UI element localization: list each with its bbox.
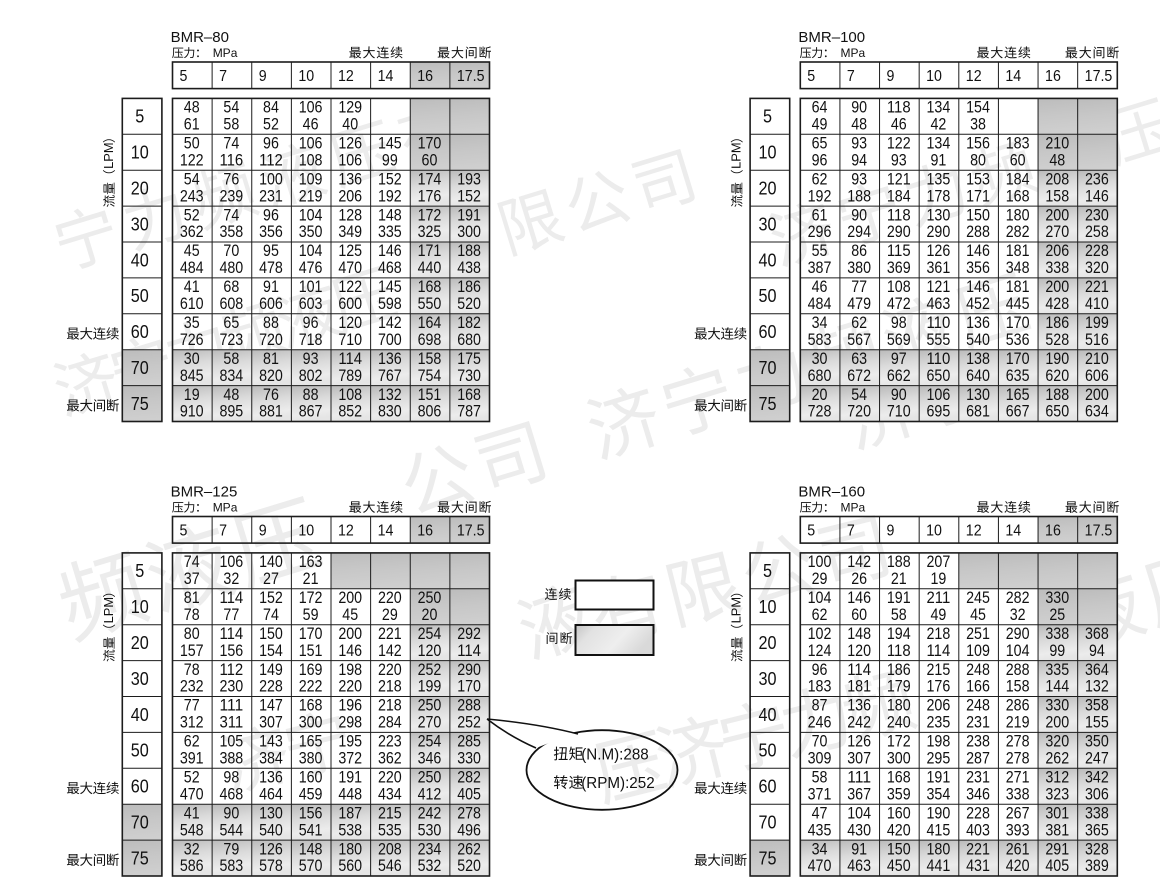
svg-text:93: 93 — [303, 350, 319, 368]
svg-text:34: 34 — [812, 314, 828, 332]
svg-text:536: 536 — [1006, 331, 1030, 349]
svg-text:50: 50 — [131, 286, 149, 306]
svg-text:40: 40 — [131, 705, 149, 725]
svg-text:21: 21 — [303, 570, 319, 588]
svg-text:88: 88 — [303, 386, 319, 404]
svg-text:114: 114 — [219, 625, 243, 643]
svg-text:LPM: LPM — [729, 597, 744, 624]
svg-text:136: 136 — [338, 170, 362, 188]
svg-text:620: 620 — [1045, 367, 1069, 385]
svg-text:60: 60 — [422, 151, 438, 169]
svg-text:183: 183 — [1006, 135, 1030, 153]
svg-text:472: 472 — [887, 295, 911, 313]
svg-text:608: 608 — [219, 295, 243, 313]
svg-text:335: 335 — [1045, 661, 1069, 679]
svg-text:367: 367 — [847, 785, 871, 803]
svg-text:187: 187 — [338, 804, 362, 822]
svg-text:75: 75 — [759, 848, 777, 868]
svg-text:106: 106 — [219, 553, 243, 571]
svg-text:480: 480 — [219, 259, 243, 277]
svg-text:464: 464 — [259, 785, 283, 803]
svg-text:181: 181 — [1006, 242, 1030, 260]
svg-text:246: 246 — [808, 714, 832, 732]
svg-text:220: 220 — [378, 589, 402, 607]
svg-text:191: 191 — [887, 589, 911, 607]
svg-text:12: 12 — [338, 68, 354, 85]
svg-text:548: 548 — [180, 821, 204, 839]
svg-text:603: 603 — [299, 295, 323, 313]
svg-text:BMR–100: BMR–100 — [798, 29, 865, 46]
svg-text:254: 254 — [418, 733, 442, 751]
svg-text:12: 12 — [966, 68, 982, 85]
svg-text:231: 231 — [966, 769, 990, 787]
svg-text:74: 74 — [263, 606, 279, 624]
svg-text:91: 91 — [263, 278, 279, 296]
svg-text:200: 200 — [338, 625, 362, 643]
svg-text:46: 46 — [812, 278, 828, 296]
svg-text:52: 52 — [184, 769, 200, 787]
svg-text:93: 93 — [891, 151, 907, 169]
svg-text:476: 476 — [299, 259, 323, 277]
svg-text:365: 365 — [1085, 821, 1109, 839]
svg-text:198: 198 — [338, 661, 362, 679]
svg-text:9: 9 — [259, 68, 267, 85]
svg-text:610: 610 — [180, 295, 204, 313]
svg-text:720: 720 — [259, 331, 283, 349]
svg-text:124: 124 — [808, 642, 832, 660]
svg-text:578: 578 — [259, 857, 283, 875]
svg-text:650: 650 — [1045, 403, 1069, 421]
svg-text:220: 220 — [378, 661, 402, 679]
svg-text:78: 78 — [184, 661, 200, 679]
svg-text:530: 530 — [418, 821, 442, 839]
svg-text:358: 358 — [219, 223, 243, 241]
svg-text:680: 680 — [457, 331, 481, 349]
svg-text:112: 112 — [219, 661, 243, 679]
svg-text:17.5: 17.5 — [457, 68, 485, 85]
svg-text:270: 270 — [418, 714, 442, 732]
svg-text:338: 338 — [1085, 804, 1109, 822]
svg-text:309: 309 — [808, 750, 832, 768]
svg-text:459: 459 — [299, 785, 323, 803]
svg-text:74: 74 — [223, 135, 239, 153]
svg-text:700: 700 — [378, 331, 402, 349]
svg-text:278: 278 — [1006, 750, 1030, 768]
svg-text:271: 271 — [1006, 769, 1030, 787]
svg-text:136: 136 — [847, 697, 871, 715]
svg-text:42: 42 — [930, 116, 946, 134]
svg-text:325: 325 — [418, 223, 442, 241]
svg-text:19: 19 — [930, 570, 946, 588]
svg-text:5: 5 — [807, 523, 815, 540]
svg-text:291: 291 — [1045, 840, 1069, 858]
svg-text:180: 180 — [1006, 206, 1030, 224]
svg-text:30: 30 — [759, 214, 777, 234]
svg-text:430: 430 — [847, 821, 871, 839]
svg-text:17.5: 17.5 — [457, 523, 485, 540]
svg-text:106: 106 — [299, 99, 323, 117]
svg-text:330: 330 — [1045, 697, 1069, 715]
svg-text:240: 240 — [887, 714, 911, 732]
svg-text:220: 220 — [338, 678, 362, 696]
svg-text:160: 160 — [887, 804, 911, 822]
svg-text:5: 5 — [763, 561, 772, 581]
svg-text:136: 136 — [259, 769, 283, 787]
svg-text:76: 76 — [223, 170, 239, 188]
svg-text:282: 282 — [1006, 223, 1030, 241]
svg-text:434: 434 — [378, 785, 402, 803]
svg-text:288: 288 — [1006, 661, 1030, 679]
svg-text:230: 230 — [1085, 206, 1109, 224]
svg-text:170: 170 — [418, 135, 442, 153]
svg-text:420: 420 — [1006, 857, 1030, 875]
svg-text:544: 544 — [219, 821, 243, 839]
svg-text:65: 65 — [812, 135, 828, 153]
svg-text:48: 48 — [1049, 151, 1065, 169]
svg-text:479: 479 — [847, 295, 871, 313]
svg-text:136: 136 — [378, 350, 402, 368]
svg-text:172: 172 — [418, 206, 442, 224]
svg-text:176: 176 — [927, 678, 951, 696]
svg-text:17.5: 17.5 — [1085, 523, 1113, 540]
svg-text:BMR–125: BMR–125 — [171, 484, 238, 501]
svg-text:47: 47 — [812, 804, 828, 822]
svg-text:726: 726 — [180, 331, 204, 349]
svg-text:852: 852 — [338, 403, 362, 421]
svg-text:180: 180 — [927, 840, 951, 858]
svg-text:311: 311 — [219, 714, 243, 732]
svg-text:170: 170 — [1006, 314, 1030, 332]
svg-text:60: 60 — [1010, 151, 1026, 169]
svg-text:448: 448 — [338, 785, 362, 803]
svg-text:468: 468 — [219, 785, 243, 803]
svg-text:191: 191 — [457, 206, 481, 224]
svg-text:10: 10 — [759, 143, 777, 163]
svg-text:282: 282 — [457, 769, 481, 787]
svg-text:114: 114 — [219, 589, 243, 607]
svg-text:188: 188 — [887, 553, 911, 571]
svg-text:188: 188 — [1045, 386, 1069, 404]
svg-text:146: 146 — [966, 278, 990, 296]
svg-text:104: 104 — [847, 804, 871, 822]
svg-text:7: 7 — [847, 68, 855, 85]
svg-text:100: 100 — [259, 170, 283, 188]
svg-text:60: 60 — [851, 606, 867, 624]
svg-text:122: 122 — [338, 278, 362, 296]
svg-text:182: 182 — [457, 314, 481, 332]
svg-text:30: 30 — [184, 350, 200, 368]
svg-text:98: 98 — [891, 314, 907, 332]
svg-text:140: 140 — [259, 553, 283, 571]
svg-text:121: 121 — [927, 278, 951, 296]
svg-text:346: 346 — [966, 785, 990, 803]
svg-text:157: 157 — [180, 642, 204, 660]
svg-text:20: 20 — [131, 178, 149, 198]
svg-text:546: 546 — [378, 857, 402, 875]
svg-text:49: 49 — [930, 606, 946, 624]
svg-text:146: 146 — [338, 642, 362, 660]
svg-text:346: 346 — [418, 750, 442, 768]
svg-text:186: 186 — [1045, 314, 1069, 332]
svg-text:258: 258 — [1085, 223, 1109, 241]
svg-text:98: 98 — [223, 769, 239, 787]
svg-text:535: 535 — [378, 821, 402, 839]
svg-text:110: 110 — [927, 350, 951, 368]
svg-text:294: 294 — [847, 223, 871, 241]
svg-text:210: 210 — [1045, 135, 1069, 153]
svg-text:191: 191 — [338, 769, 362, 787]
svg-text:250: 250 — [418, 769, 442, 787]
svg-text:198: 198 — [927, 733, 951, 751]
svg-text:106: 106 — [927, 386, 951, 404]
svg-text:206: 206 — [338, 187, 362, 205]
svg-text:600: 600 — [338, 295, 362, 313]
svg-text:221: 221 — [378, 625, 402, 643]
svg-text:148: 148 — [378, 206, 402, 224]
svg-text:108: 108 — [338, 386, 362, 404]
svg-text:5: 5 — [180, 68, 188, 85]
svg-text:199: 199 — [1085, 314, 1109, 332]
svg-text:59: 59 — [303, 606, 319, 624]
svg-text:338: 338 — [1006, 785, 1030, 803]
svg-text:135: 135 — [927, 170, 951, 188]
svg-text:181: 181 — [1006, 278, 1030, 296]
svg-text:215: 215 — [378, 804, 402, 822]
svg-text:192: 192 — [808, 187, 832, 205]
svg-text:516: 516 — [1085, 331, 1109, 349]
svg-text:176: 176 — [418, 187, 442, 205]
svg-text:168: 168 — [1006, 187, 1030, 205]
svg-text:49: 49 — [812, 116, 828, 134]
svg-text:105: 105 — [219, 733, 243, 751]
svg-text:192: 192 — [378, 187, 402, 205]
svg-text:278: 278 — [457, 804, 481, 822]
svg-text:286: 286 — [1006, 697, 1030, 715]
svg-text:251: 251 — [966, 625, 990, 643]
svg-text:364: 364 — [1085, 661, 1109, 679]
svg-text:583: 583 — [808, 331, 832, 349]
svg-text:94: 94 — [1089, 642, 1105, 660]
svg-text:290: 290 — [887, 223, 911, 241]
svg-text:165: 165 — [1006, 386, 1030, 404]
svg-text:262: 262 — [457, 840, 481, 858]
svg-text:350: 350 — [1085, 733, 1109, 751]
svg-text:219: 219 — [1006, 714, 1030, 732]
svg-text:132: 132 — [378, 386, 402, 404]
svg-text:16: 16 — [1045, 523, 1061, 540]
svg-text:5: 5 — [180, 523, 188, 540]
svg-text:BMR–160: BMR–160 — [798, 484, 865, 501]
svg-text:431: 431 — [966, 857, 990, 875]
svg-text:104: 104 — [1006, 642, 1030, 660]
svg-text:32: 32 — [184, 840, 200, 858]
svg-text:154: 154 — [966, 99, 990, 117]
svg-text:252: 252 — [418, 661, 442, 679]
svg-text:910: 910 — [180, 403, 204, 421]
svg-text:138: 138 — [966, 350, 990, 368]
svg-text:284: 284 — [378, 714, 402, 732]
svg-text:570: 570 — [299, 857, 323, 875]
svg-text:121: 121 — [887, 170, 911, 188]
svg-text:698: 698 — [418, 331, 442, 349]
svg-text:452: 452 — [966, 295, 990, 313]
svg-text:40: 40 — [131, 250, 149, 270]
svg-text:7: 7 — [847, 523, 855, 540]
svg-text:730: 730 — [457, 367, 481, 385]
svg-text:74: 74 — [223, 206, 239, 224]
svg-text:80: 80 — [184, 625, 200, 643]
svg-text:118: 118 — [887, 206, 911, 224]
svg-text:109: 109 — [299, 170, 323, 188]
svg-text:10: 10 — [926, 68, 942, 85]
svg-text:93: 93 — [851, 170, 867, 188]
svg-text:356: 356 — [966, 259, 990, 277]
svg-text:662: 662 — [887, 367, 911, 385]
svg-text:90: 90 — [223, 804, 239, 822]
svg-text:(RPM):252: (RPM):252 — [581, 775, 655, 792]
svg-text:146: 146 — [1085, 187, 1109, 205]
svg-text:538: 538 — [338, 821, 362, 839]
svg-text:68: 68 — [223, 278, 239, 296]
svg-text:170: 170 — [1006, 350, 1030, 368]
svg-text:200: 200 — [1045, 714, 1069, 732]
svg-text:420: 420 — [887, 821, 911, 839]
svg-text:37: 37 — [184, 570, 200, 588]
svg-text:190: 190 — [927, 804, 951, 822]
svg-text:754: 754 — [418, 367, 442, 385]
svg-text:14: 14 — [1005, 68, 1021, 85]
svg-text:20: 20 — [422, 606, 438, 624]
svg-text:115: 115 — [887, 242, 911, 260]
svg-text:252: 252 — [457, 714, 481, 732]
svg-text:484: 484 — [808, 295, 832, 313]
svg-text:186: 186 — [887, 661, 911, 679]
svg-text:248: 248 — [966, 661, 990, 679]
svg-text:114: 114 — [338, 350, 362, 368]
svg-text:470: 470 — [808, 857, 832, 875]
svg-text:292: 292 — [457, 625, 481, 643]
svg-text:247: 247 — [1085, 750, 1109, 768]
svg-text:10: 10 — [298, 68, 314, 85]
svg-text:358: 358 — [1085, 697, 1109, 715]
svg-text:75: 75 — [759, 394, 777, 414]
svg-text:35: 35 — [184, 314, 200, 332]
svg-text:183: 183 — [808, 678, 832, 696]
svg-text:45: 45 — [342, 606, 358, 624]
svg-text:10: 10 — [926, 523, 942, 540]
svg-text:75: 75 — [131, 848, 149, 868]
svg-text:5: 5 — [135, 107, 144, 127]
svg-text:361: 361 — [927, 259, 951, 277]
svg-text:111: 111 — [219, 697, 243, 715]
svg-text:156: 156 — [219, 642, 243, 660]
svg-text:101: 101 — [299, 278, 323, 296]
svg-text:BMR–80: BMR–80 — [171, 29, 229, 46]
svg-text:112: 112 — [259, 151, 283, 169]
svg-text:94: 94 — [851, 151, 867, 169]
svg-text:211: 211 — [927, 589, 951, 607]
svg-text:710: 710 — [887, 403, 911, 421]
svg-text:306: 306 — [1085, 785, 1109, 803]
svg-text:206: 206 — [927, 697, 951, 715]
svg-text:188: 188 — [457, 242, 481, 260]
svg-text:70: 70 — [759, 812, 777, 832]
svg-text:288: 288 — [457, 697, 481, 715]
svg-text:328: 328 — [1085, 840, 1109, 858]
svg-text:208: 208 — [1045, 170, 1069, 188]
svg-text:221: 221 — [1085, 278, 1109, 296]
svg-text:179: 179 — [887, 678, 911, 696]
svg-text:88: 88 — [263, 314, 279, 332]
svg-text:199: 199 — [418, 678, 442, 696]
svg-text:70: 70 — [131, 812, 149, 832]
svg-text:165: 165 — [299, 733, 323, 751]
svg-text:100: 100 — [808, 553, 832, 571]
svg-text:20: 20 — [759, 633, 777, 653]
svg-text:14: 14 — [378, 68, 394, 85]
svg-text:48: 48 — [223, 386, 239, 404]
svg-text:10: 10 — [131, 143, 149, 163]
svg-text:91: 91 — [851, 840, 867, 858]
svg-text:120: 120 — [847, 642, 871, 660]
svg-text:242: 242 — [847, 714, 871, 732]
svg-text:667: 667 — [1006, 403, 1030, 421]
svg-text:114: 114 — [847, 661, 871, 679]
svg-text:560: 560 — [338, 857, 362, 875]
svg-text:338: 338 — [1045, 259, 1069, 277]
svg-text:728: 728 — [808, 403, 832, 421]
svg-text:34: 34 — [812, 840, 828, 858]
svg-text:27: 27 — [263, 570, 279, 588]
svg-text:349: 349 — [338, 223, 362, 241]
svg-text:38: 38 — [970, 116, 986, 134]
svg-text:710: 710 — [338, 331, 362, 349]
svg-text:97: 97 — [891, 350, 907, 368]
svg-text:171: 171 — [966, 187, 990, 205]
svg-text:681: 681 — [966, 403, 990, 421]
svg-text:95: 95 — [263, 242, 279, 260]
svg-text:254: 254 — [418, 625, 442, 643]
svg-text:20: 20 — [759, 178, 777, 198]
svg-text:90: 90 — [891, 386, 907, 404]
svg-text:136: 136 — [966, 314, 990, 332]
svg-text:130: 130 — [259, 804, 283, 822]
svg-text:77: 77 — [184, 697, 200, 715]
svg-text:393: 393 — [1006, 821, 1030, 839]
svg-text:350: 350 — [299, 223, 323, 241]
svg-text:867: 867 — [299, 403, 323, 421]
svg-text:70: 70 — [812, 733, 828, 751]
svg-text:16: 16 — [417, 68, 433, 85]
svg-text:282: 282 — [1006, 589, 1030, 607]
svg-text:200: 200 — [1045, 206, 1069, 224]
svg-text:640: 640 — [966, 367, 990, 385]
svg-text:520: 520 — [457, 857, 481, 875]
svg-text:231: 231 — [966, 714, 990, 732]
svg-text:102: 102 — [808, 625, 832, 643]
svg-text:164: 164 — [418, 314, 442, 332]
svg-text:881: 881 — [259, 403, 283, 421]
svg-text:70: 70 — [131, 358, 149, 378]
svg-text:484: 484 — [180, 259, 204, 277]
svg-text:166: 166 — [966, 678, 990, 696]
svg-text:234: 234 — [418, 840, 442, 858]
svg-text:96: 96 — [263, 206, 279, 224]
svg-text:93: 93 — [851, 135, 867, 153]
svg-text:468: 468 — [378, 259, 402, 277]
svg-text:156: 156 — [299, 804, 323, 822]
svg-text:29: 29 — [812, 570, 828, 588]
